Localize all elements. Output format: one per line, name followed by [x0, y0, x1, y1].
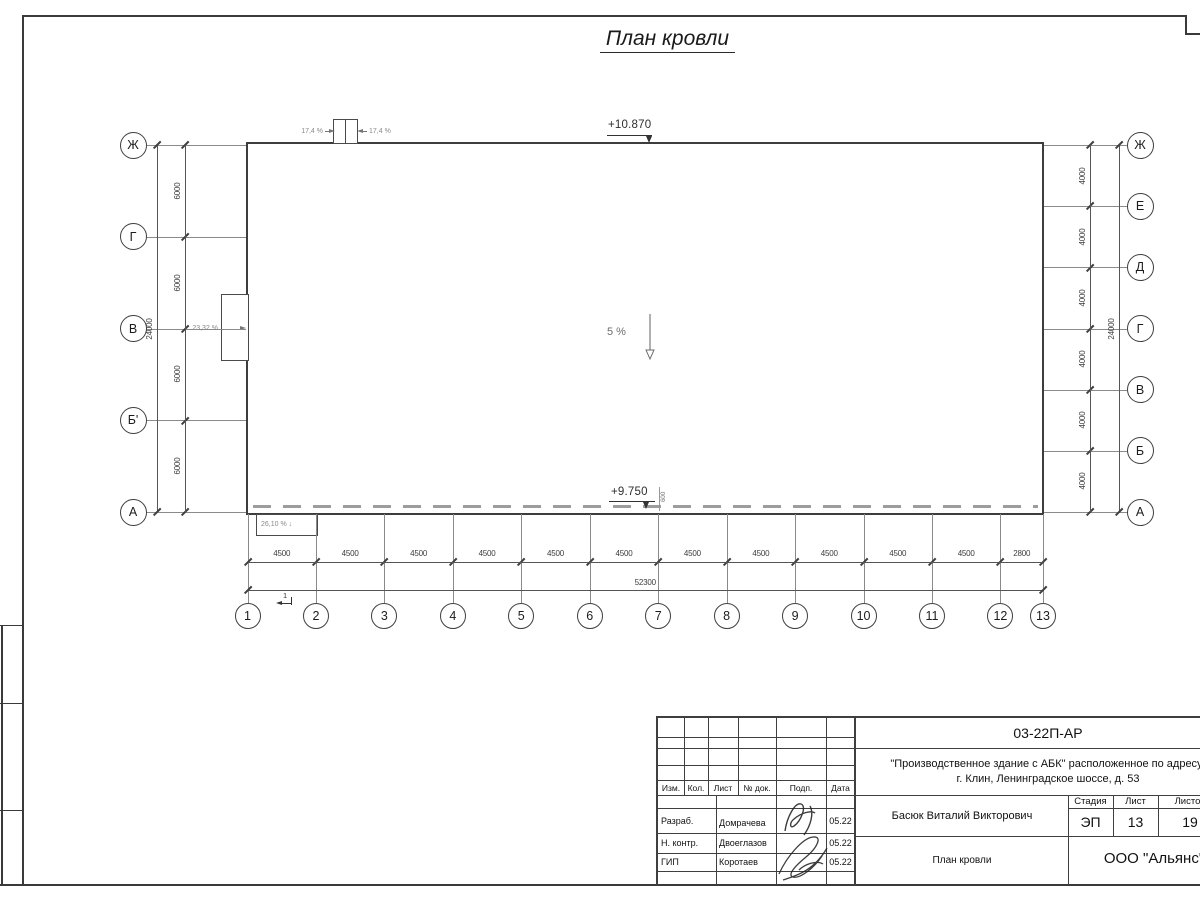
- dim-label: 4500: [739, 549, 783, 559]
- dim-chain-line: [185, 145, 186, 512]
- titleblock-hline: [658, 748, 855, 749]
- role-nkontr: Н. контр.: [661, 833, 715, 853]
- row-axis-bubble-right: Е: [1127, 193, 1154, 220]
- name-nkontr: Двоеглазов: [719, 833, 775, 853]
- dim-label: 4500: [944, 549, 988, 559]
- frame-notch-h: [1185, 33, 1200, 35]
- frame-top-line: [22, 15, 1186, 17]
- dim-label: 4500: [807, 549, 851, 559]
- row-axis-line: [147, 512, 247, 513]
- row-axis-line: [1044, 390, 1127, 391]
- row-axis-line: [147, 145, 247, 146]
- frame-notch-v: [1185, 15, 1187, 35]
- margin-box-divider: [0, 810, 23, 811]
- row-axis-bubble-left: В: [120, 315, 147, 342]
- dim-label: 4000: [1078, 459, 1088, 503]
- row-axis-line: [147, 237, 247, 238]
- role-gip: ГИП: [661, 853, 715, 871]
- elevation-bottom-arrow-icon: [643, 502, 649, 509]
- dim-label: 4000: [1078, 337, 1088, 381]
- page-title: План кровли: [555, 27, 780, 51]
- section-mark-arrow-icon: [276, 601, 282, 605]
- project-name: "Производственное здание с АБК" располож…: [856, 749, 1200, 794]
- dim-label: 4000: [1078, 398, 1088, 442]
- column-axis-bubble: 1: [235, 603, 261, 629]
- slope-label-hatch-left: 17,4 %: [283, 127, 323, 136]
- column-axis-bubble: 2: [303, 603, 329, 629]
- column-axis-bubble: 7: [645, 603, 671, 629]
- elevation-top-arrow-icon: [646, 136, 652, 143]
- section-mark-label: 1: [283, 591, 287, 600]
- signature-gip: [773, 830, 831, 882]
- dim-total-label: 24000: [145, 307, 155, 351]
- elevation-bottom: +9.750: [611, 486, 648, 498]
- dim-label: 6000: [173, 444, 183, 488]
- row-axis-bubble-right: Г: [1127, 315, 1154, 342]
- dim-chain-line: [248, 562, 1044, 563]
- slope-direction-arrow-icon: [643, 314, 657, 360]
- row-axis-line: [147, 329, 247, 330]
- dim-total-line: [1119, 145, 1120, 512]
- column-axis-bubble: 4: [440, 603, 466, 629]
- titleblock-border-left: [656, 716, 658, 886]
- dim-label: 6000: [173, 261, 183, 305]
- row-axis-bubble-left: А: [120, 499, 147, 526]
- row-axis-bubble-left: Г: [120, 223, 147, 250]
- margin-box-divider: [0, 703, 23, 704]
- dim-total-line: [157, 145, 158, 512]
- frame-left-line: [22, 15, 24, 886]
- company-name: ООО "Альянс": [1068, 836, 1200, 880]
- header-kol: Кол.: [684, 780, 708, 795]
- stage-label: Стадия: [1068, 795, 1113, 808]
- column-axis-bubble: 3: [371, 603, 397, 629]
- margin-box-edge: [1, 625, 3, 885]
- row-axis-bubble-right: А: [1127, 499, 1154, 526]
- row-axis-bubble-right: В: [1127, 376, 1154, 403]
- dim-label: 4500: [534, 549, 578, 559]
- dim-label: 4500: [602, 549, 646, 559]
- approver-name: Басюк Виталий Викторович: [856, 795, 1068, 836]
- project-address-line2: г. Клин, Ленинградское шоссе, д. 53: [957, 772, 1140, 787]
- titleblock-hline: [658, 765, 855, 766]
- dim-total-label: 52300: [615, 578, 675, 588]
- header-doc: № док.: [738, 780, 776, 795]
- column-axis-bubble: 10: [851, 603, 877, 629]
- dim-label: 4500: [876, 549, 920, 559]
- hatch-arrowhead-left-icon: [329, 129, 335, 133]
- role-razrab: Разраб.: [661, 808, 715, 833]
- sheets-total: 19: [1158, 808, 1200, 836]
- header-list: Лист: [708, 780, 738, 795]
- header-izm: Изм.: [658, 780, 684, 795]
- titleblock-hline: [658, 737, 855, 738]
- dim-label: 6000: [173, 352, 183, 396]
- row-axis-line: [1044, 512, 1127, 513]
- dim-total-line: [248, 590, 1044, 591]
- dim-label: 4500: [397, 549, 441, 559]
- slope-label-bottom: 26,10 % ↓: [261, 520, 292, 529]
- slope-label-hatch-right: 17,4 %: [369, 127, 409, 136]
- dim-label: 4500: [328, 549, 372, 559]
- dim-label: 4000: [1078, 154, 1088, 198]
- sheets-label: Листов: [1158, 795, 1200, 808]
- row-axis-line: [1044, 145, 1127, 146]
- row-axis-bubble-right: Д: [1127, 254, 1154, 281]
- project-address-line1: "Производственное здание с АБК" располож…: [890, 757, 1200, 772]
- row-axis-bubble-right: Ж: [1127, 132, 1154, 159]
- column-axis-bubble: 12: [987, 603, 1013, 629]
- name-gip: Коротаев: [719, 853, 775, 871]
- column-axis-bubble: 5: [508, 603, 534, 629]
- drawing-name: План кровли: [856, 836, 1068, 885]
- dim-label: 6000: [173, 169, 183, 213]
- roof-hatch-divider: [345, 119, 346, 144]
- dim-label: 4000: [1078, 215, 1088, 259]
- dim-label: 4500: [260, 549, 304, 559]
- margin-box-divider: [0, 625, 23, 626]
- drawing-sheet: План кровли 26,10 % ↓ 23,32 % 17,4 % 17,…: [0, 0, 1200, 900]
- column-axis-bubble: 9: [782, 603, 808, 629]
- doc-code: 03-22П-АР: [856, 718, 1200, 748]
- row-axis-bubble-left: Ж: [120, 132, 147, 159]
- dim-label: 4500: [465, 549, 509, 559]
- elevation-top: +10.870: [608, 119, 651, 131]
- header-data: Дата: [826, 780, 855, 795]
- dim-label: 4000: [1078, 276, 1088, 320]
- sheet-label: Лист: [1113, 795, 1158, 808]
- column-axis-bubble: 13: [1030, 603, 1056, 629]
- stage-value: ЭП: [1068, 808, 1113, 836]
- column-axis-bubble: 8: [714, 603, 740, 629]
- dim-total-label: 24000: [1107, 307, 1117, 351]
- dim-chain-line: [1090, 145, 1091, 512]
- hatch-arrow-line-right: [361, 131, 367, 132]
- sheet-number: 13: [1113, 808, 1158, 836]
- down-arrow-icon: ↓: [289, 521, 293, 528]
- row-axis-line: [1044, 206, 1127, 207]
- row-axis-line: [1044, 267, 1127, 268]
- row-axis-bubble-right: Б: [1127, 437, 1154, 464]
- header-podp: Подп.: [776, 780, 826, 795]
- section-mark-tick: [291, 597, 292, 605]
- row-axis-bubble-left: Б': [120, 407, 147, 434]
- dim-label: 2800: [1000, 549, 1044, 559]
- name-razrab: Домрачева: [719, 810, 775, 835]
- parapet-offset-label: 600: [659, 477, 669, 517]
- slope-label-center: 5 %: [607, 326, 626, 338]
- column-axis-bubble: 11: [919, 603, 945, 629]
- row-axis-line: [147, 420, 247, 421]
- dim-label: 4500: [670, 549, 714, 559]
- column-axis-bubble: 6: [577, 603, 603, 629]
- row-axis-line: [1044, 451, 1127, 452]
